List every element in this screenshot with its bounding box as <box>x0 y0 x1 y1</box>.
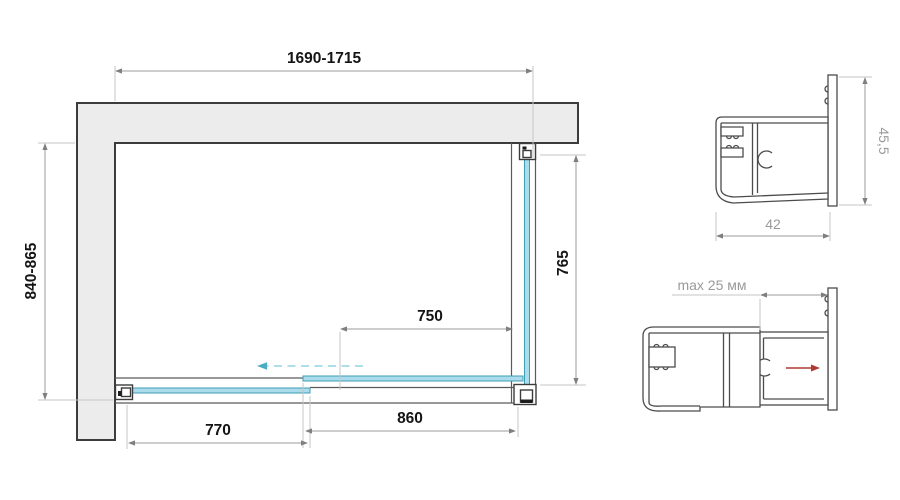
dim-profile-width-label: 42 <box>765 216 781 232</box>
side-glass <box>525 155 530 387</box>
dimension-side-panel: 765 <box>540 155 586 385</box>
profile-detail-bottom: max 25 мм <box>643 277 837 411</box>
dim-overall-width-label: 1690-1715 <box>287 50 362 67</box>
plan-view: 1690-1715 840-865 765 750 <box>23 50 586 449</box>
adjust-profile-flange <box>828 288 837 410</box>
dim-fixed-panel-label: 860 <box>397 410 423 427</box>
dim-door-panel-label: 770 <box>205 422 231 439</box>
dimension-door-panel: 770 <box>127 405 308 449</box>
dim-overall-depth-label: 840-865 <box>23 242 40 299</box>
side-glass-panel <box>512 143 537 405</box>
slide-direction-arrow <box>257 362 363 369</box>
sliding-door-assembly <box>115 362 523 403</box>
dimension-profile-width: 42 <box>716 212 830 241</box>
dim-profile-height-label: 45,5 <box>876 127 892 154</box>
profile-flange <box>828 75 837 206</box>
dim-door-opening-label: 750 <box>417 308 443 325</box>
dimension-profile-height: 45,5 <box>839 77 892 205</box>
technical-drawing: 1690-1715 840-865 765 750 <box>0 0 900 500</box>
wall-profile-body <box>643 327 760 411</box>
dim-side-panel-label: 765 <box>555 250 572 276</box>
profile-detail-top: 45,5 42 <box>716 75 892 241</box>
drawing-canvas: 1690-1715 840-865 765 750 <box>0 0 900 500</box>
dimension-adjustment-range: max 25 мм <box>672 277 828 330</box>
screw-channel-icon <box>758 151 772 168</box>
sliding-door-panel <box>131 388 310 393</box>
wall-profile-bracket-left <box>116 385 133 400</box>
dimension-fixed-panel: 860 <box>303 383 518 448</box>
fixed-glass-panel <box>303 376 523 381</box>
corner-connector-block <box>514 385 536 405</box>
dim-adjustment-range-label: max 25 мм <box>677 277 746 293</box>
